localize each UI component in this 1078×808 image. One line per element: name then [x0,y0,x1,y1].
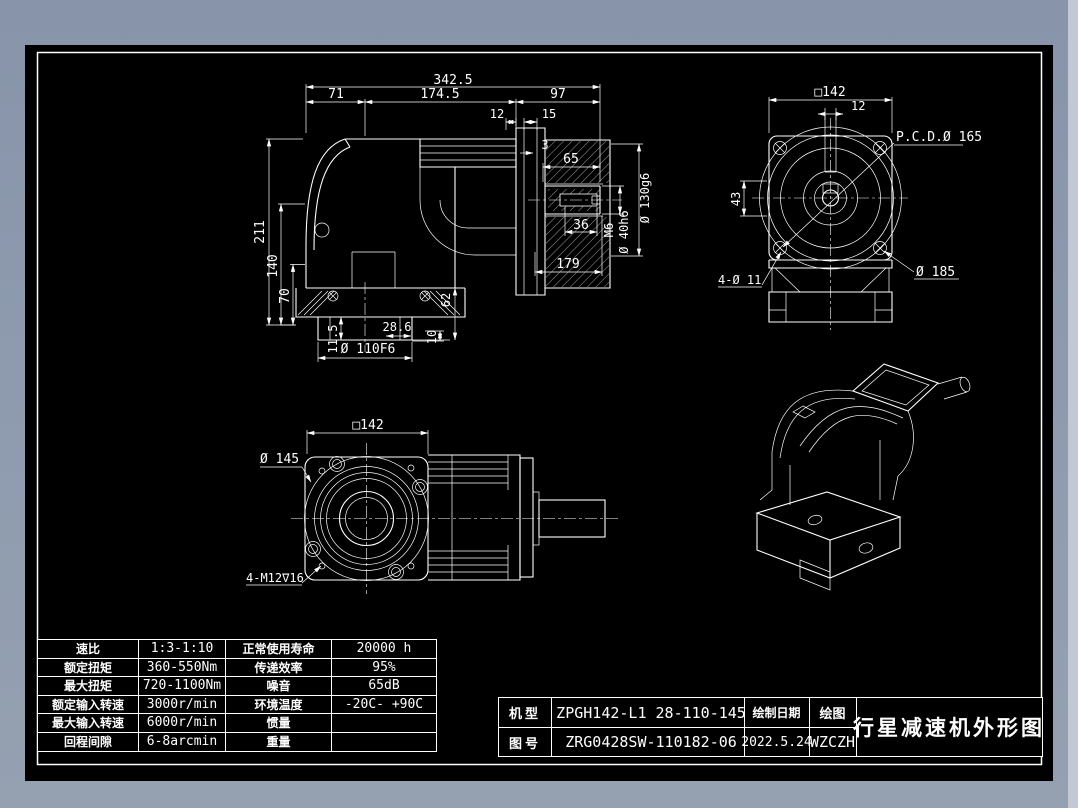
dim-shaft-dia: Ø 40h6 [617,210,631,253]
spec-value: 360-550Nm [139,659,226,678]
author-value: WZCZH [809,728,856,756]
drawing-title: 行星减速机外形图 [856,698,1042,756]
dim-key-len: 36 [573,218,589,233]
spec-table: 速比 1:3-1:10 正常使用寿命 20000 h 额定扭矩 360-550N… [37,639,437,752]
dim-total-width: 342.5 [433,73,472,88]
spec-label: 环境温度 [226,696,332,715]
spec-value: 1:3-1:10 [139,640,226,659]
dim-foot-h: 62 [439,293,453,307]
number-label: 图号 [499,728,551,756]
dim-43: 43 [729,192,743,206]
spec-label: 最大扭矩 [38,677,139,696]
spec-value: 20000 h [332,640,436,659]
spec-label: 重量 [226,733,332,752]
date-value: 2022.5.24 [744,728,809,756]
spec-value: 6000r/min [139,714,226,733]
title-block: 机型 ZPGH142-L1 28-110-145 绘制日期 绘图 图号 ZRG0… [498,697,1043,757]
dim-holes-face: 4-M12∇16 [246,571,304,585]
dim-pilot-dia: Ø 130g6 [638,173,652,224]
spec-label: 噪音 [226,677,332,696]
spec-label: 传递效率 [226,659,332,678]
dim-square-face: □142 [352,418,383,433]
dim-gap: 3 [541,138,548,152]
dim-keyway: 12 [851,99,865,113]
dim-pcd: P.C.D.Ø 165 [896,130,982,145]
spec-value [332,733,436,752]
dim-step1: 12 [490,107,504,121]
spec-value: 3000r/min [139,696,226,715]
dim-step2: 15 [542,107,556,121]
dim-h140: 140 [266,254,281,277]
author-label: 绘图 [809,698,856,727]
number-value: ZRG0428SW-110182-06 [551,728,751,756]
spec-label: 正常使用寿命 [226,640,332,659]
dim-holes-rear: 4-Ø 11 [718,273,761,287]
spec-label: 额定扭矩 [38,659,139,678]
spec-label: 最大输入转速 [38,714,139,733]
dim-flange-185: Ø 185 [916,265,955,280]
dim-bottom-pilot: Ø 110F6 [341,342,396,357]
date-label: 绘制日期 [744,698,809,727]
spec-label: 速比 [38,640,139,659]
dim-key-w: 28.6 [383,320,412,334]
model-value: ZPGH142-L1 28-110-145 [551,698,751,727]
spec-value: 65dB [332,677,436,696]
dim-seg-mid: 174.5 [420,87,459,102]
spec-value: 6-8arcmin [139,733,226,752]
dim-square-rear: □142 [814,85,845,100]
dim-plate: 10 [425,330,439,344]
dim-foot-offset: 11.5 [326,325,340,354]
spec-value: -20C- +90C [332,696,436,715]
dim-seg-left: 71 [328,87,344,102]
dim-shaft-len: 65 [563,152,579,167]
dim-seg-right: 97 [550,87,566,102]
dim-h70: 70 [278,288,293,304]
dim-flange-dia: Ø 145 [260,452,299,467]
spec-value: 720-1100Nm [139,677,226,696]
spec-value [332,714,436,733]
spec-value: 95% [332,659,436,678]
dim-height: 211 [253,220,268,243]
dim-block-len: 179 [556,257,579,272]
spec-label: 额定输入转速 [38,696,139,715]
spec-label: 惯量 [226,714,332,733]
model-label: 机型 [499,698,551,727]
cad-viewer-page: 342.5 71 174.5 97 12 15 211 140 70 3 65 … [0,0,1078,808]
dim-tap: M6 [602,223,616,237]
spec-label: 回程间隙 [38,733,139,752]
